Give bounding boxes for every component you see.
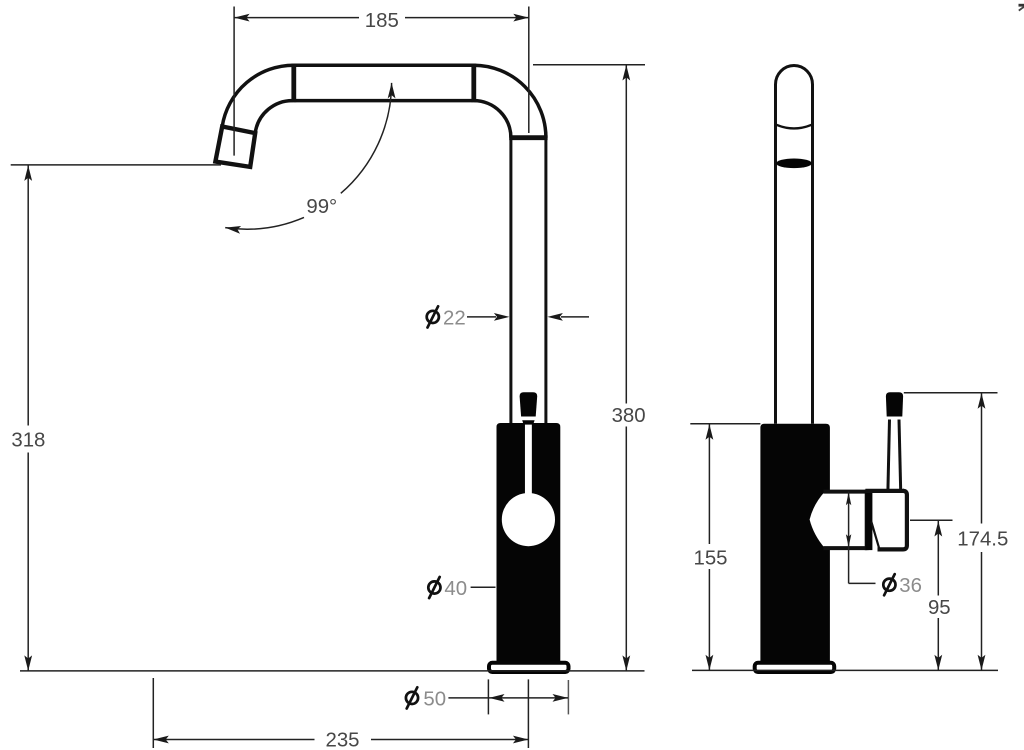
svg-text:99°: 99° bbox=[306, 196, 337, 218]
svg-text:95: 95 bbox=[928, 597, 951, 619]
svg-text:36: 36 bbox=[899, 575, 922, 597]
svg-text:155: 155 bbox=[693, 547, 727, 569]
svg-text:174.5: 174.5 bbox=[957, 528, 1008, 550]
svg-text:40: 40 bbox=[444, 578, 467, 600]
svg-text:318: 318 bbox=[11, 429, 45, 451]
svg-text:50: 50 bbox=[423, 688, 446, 710]
svg-text:235: 235 bbox=[325, 730, 359, 750]
svg-text:22: 22 bbox=[443, 307, 466, 329]
svg-text:380: 380 bbox=[612, 405, 646, 427]
svg-text:185: 185 bbox=[365, 10, 399, 32]
